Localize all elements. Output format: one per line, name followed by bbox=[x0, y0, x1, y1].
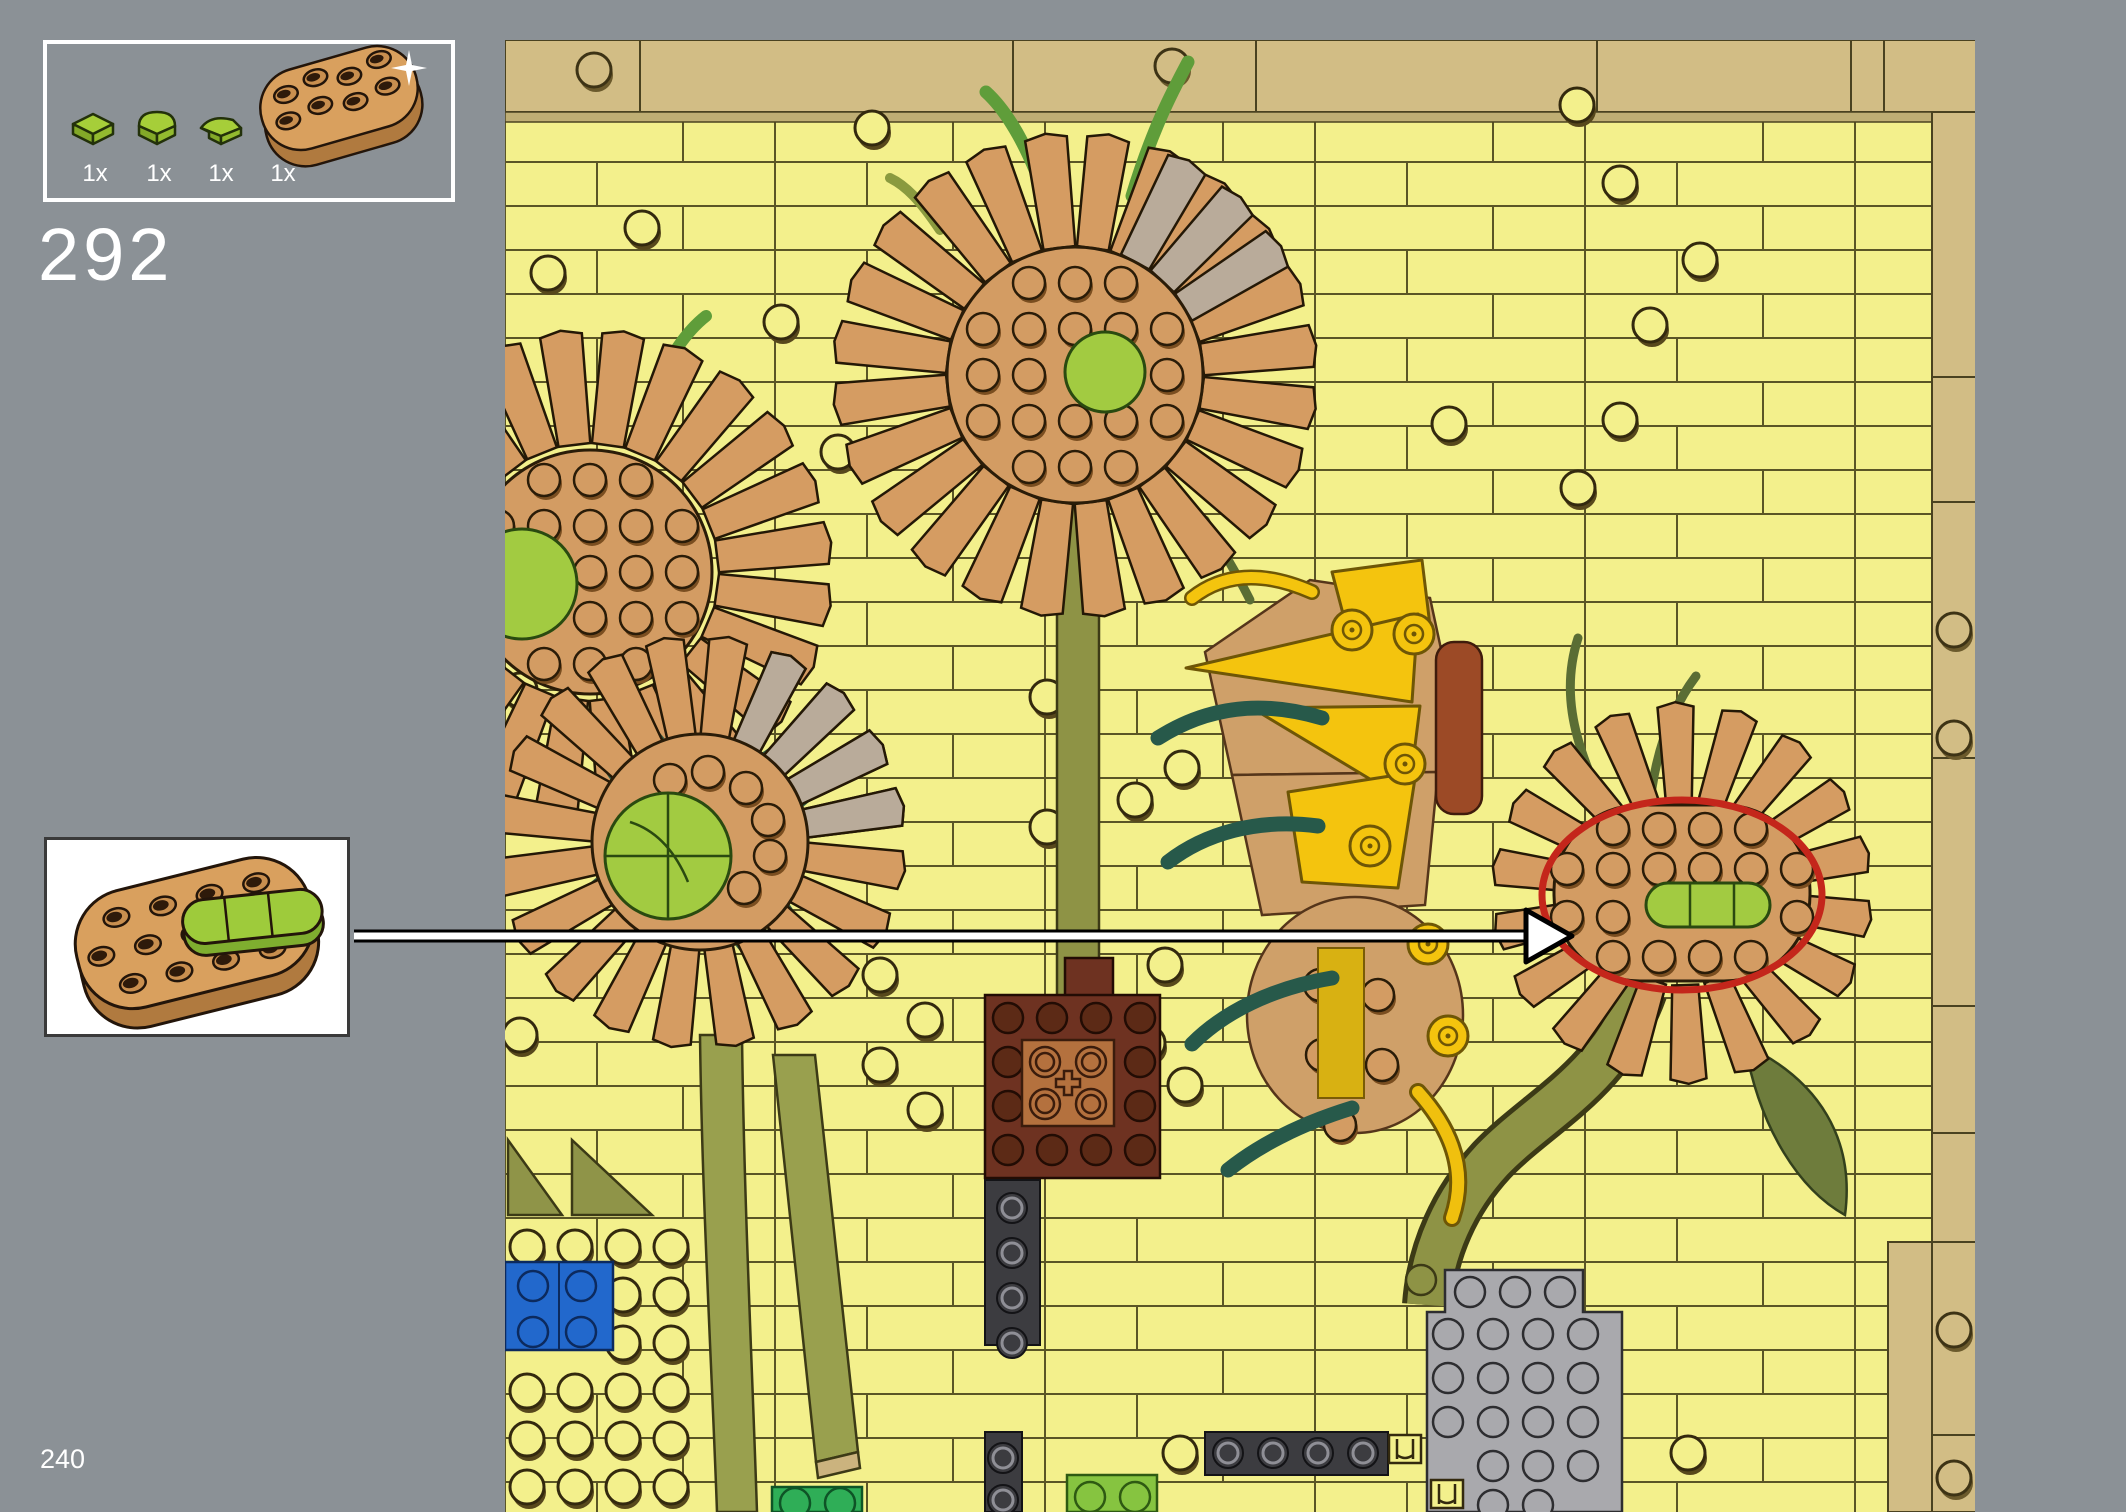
part-lime-half-round-tile-icon bbox=[133, 102, 185, 152]
blue-bricks bbox=[505, 1262, 613, 1350]
part-qty: 1x bbox=[199, 160, 243, 188]
part-qty: 1x bbox=[73, 160, 117, 188]
subassembly-preview bbox=[47, 840, 347, 1034]
page-number: 240 bbox=[40, 1444, 85, 1475]
callout-arrow bbox=[340, 898, 1600, 974]
parts-callout-box: 1x 1x 1x 1x bbox=[43, 40, 455, 202]
build-illustration bbox=[505, 40, 1975, 1512]
part-qty: 1x bbox=[261, 160, 305, 188]
part-lime-plate-icon bbox=[69, 102, 121, 152]
arrowhead-icon bbox=[1526, 910, 1572, 962]
subassembly-inset-box bbox=[44, 837, 350, 1037]
part-qty: 1x bbox=[137, 160, 181, 188]
step-number: 292 bbox=[38, 212, 173, 297]
new-part-sparkle-icon bbox=[387, 46, 431, 90]
